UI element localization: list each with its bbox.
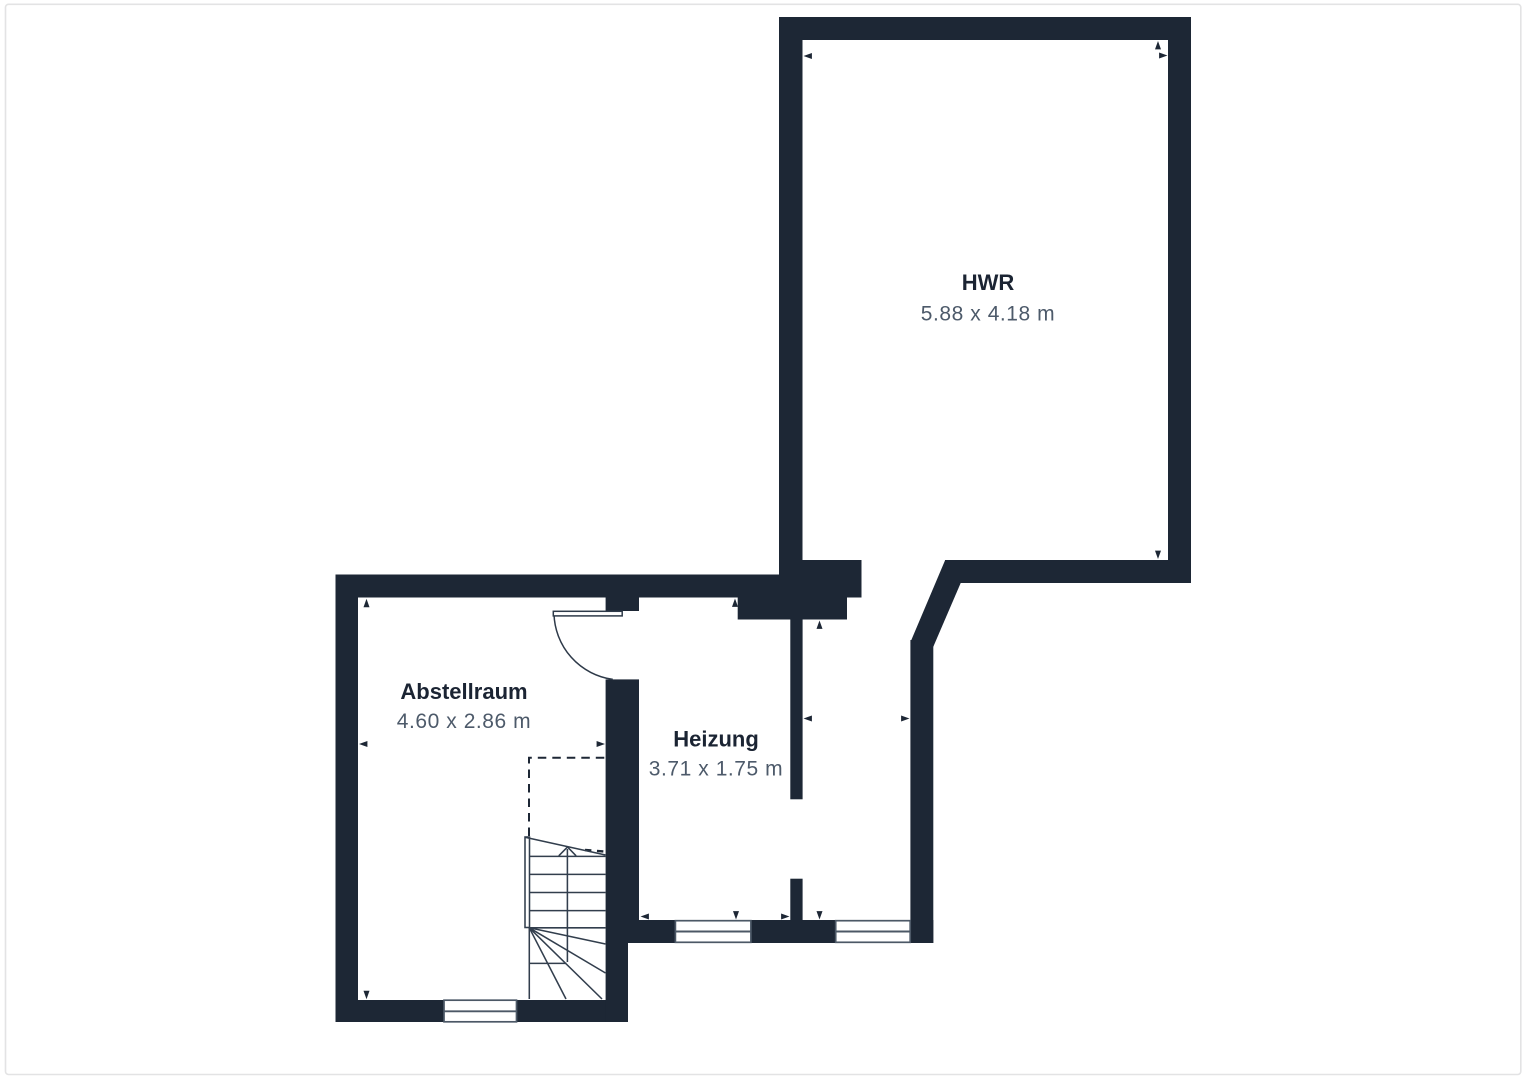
- svg-text:4.60 x 2.86 m: 4.60 x 2.86 m: [397, 710, 531, 733]
- svg-text:Heizung: Heizung: [673, 727, 759, 752]
- svg-text:Abstellraum: Abstellraum: [400, 679, 527, 704]
- svg-text:HWR: HWR: [962, 270, 1015, 295]
- svg-text:5.88 x 4.18 m: 5.88 x 4.18 m: [921, 303, 1055, 326]
- svg-text:3.71 x 1.75 m: 3.71 x 1.75 m: [649, 758, 783, 781]
